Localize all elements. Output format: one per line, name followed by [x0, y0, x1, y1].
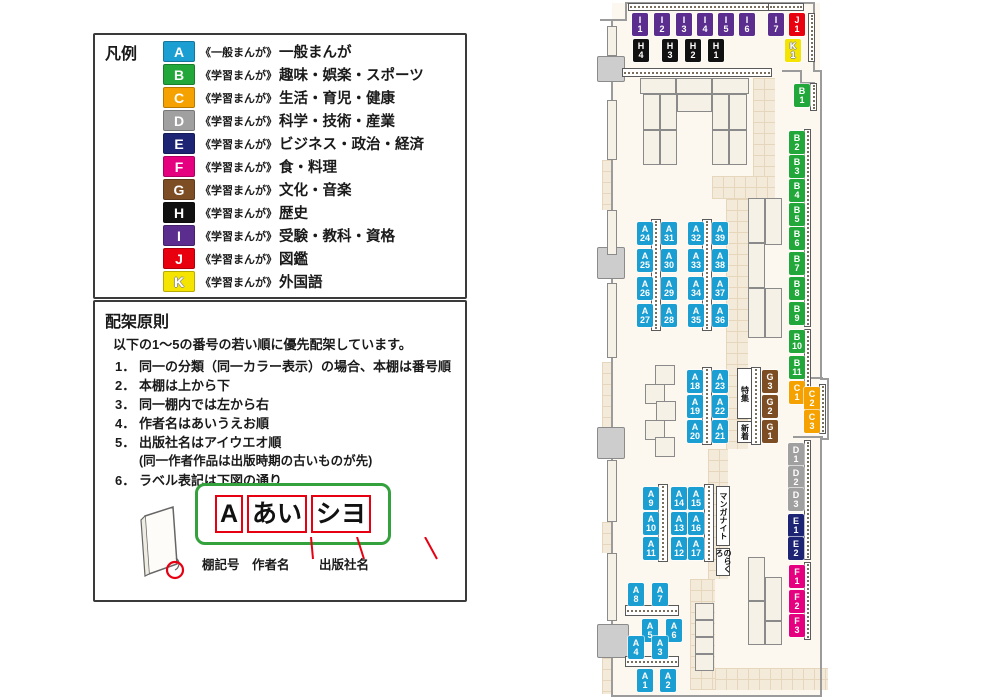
shelf-label-B6: B6 [789, 227, 805, 250]
label-segment-2: あい [247, 495, 307, 533]
shelf-box [655, 437, 675, 457]
shelf-label-A6: A6 [666, 619, 682, 642]
shelf-box [748, 243, 765, 288]
shelf-box [660, 94, 677, 130]
label-segment-1: A [215, 495, 243, 533]
shelf-box [640, 78, 676, 94]
rule-3: 3．同一棚内では左から右 [115, 395, 459, 414]
shelf-label-A9: A9 [643, 487, 659, 510]
shelf-label-B5: B5 [789, 203, 805, 226]
legend-item-list: A《一般まんが》一般まんがB《学習まんが》趣味・娯楽・スポーツC《学習まんが》生… [163, 40, 424, 293]
category-label: 受験・教科・資格 [279, 225, 395, 246]
shelf-label-A27: A27 [637, 304, 653, 327]
shelf-label-J1: J1 [789, 13, 805, 36]
legend-item-B: B《学習まんが》趣味・娯楽・スポーツ [163, 63, 424, 86]
shelf-box [655, 365, 675, 385]
shelf-label-F2: F2 [789, 590, 805, 613]
shelf-box [765, 288, 782, 338]
shelf-label-A4: A4 [628, 636, 644, 659]
rule-4: 4．作者名はあいうえお順 [115, 414, 459, 433]
rule-number: 1． [115, 357, 139, 376]
shelf-label-A11: A11 [643, 537, 659, 560]
shelf-strip [658, 484, 668, 562]
category-swatch-C: C [163, 87, 195, 108]
shelf-strip [808, 13, 815, 62]
category-label: 図鑑 [279, 248, 308, 269]
shelf-label-F3: F3 [789, 614, 805, 637]
category-swatch-I: I [163, 225, 195, 246]
shelf-label-A2: A2 [660, 669, 676, 692]
shelf-box [729, 130, 747, 165]
shelf-label-G3: G3 [762, 370, 778, 393]
shelf-label-H1: H1 [708, 39, 724, 62]
shelf-label-E2: E2 [788, 537, 804, 560]
walkway-tile [753, 78, 775, 176]
shelf-box [660, 130, 677, 165]
shelf-label-B8: B8 [789, 277, 805, 300]
rule-text: 同一の分類（同一カラー表示）の場合、本棚は番号順 [139, 357, 451, 376]
door [597, 56, 625, 82]
shelf-label-D3: D3 [788, 488, 804, 511]
category-scope: 《学習まんが》 [200, 90, 277, 106]
door [597, 427, 625, 459]
legend-item-A: A《一般まんが》一般まんが [163, 40, 424, 63]
shelf-box [748, 198, 765, 243]
category-swatch-B: B [163, 64, 195, 85]
legend-item-K: K《学習まんが》外国語 [163, 270, 424, 293]
category-label: ビジネス・政治・経済 [279, 133, 424, 154]
shelf-label-D2: D2 [788, 466, 804, 489]
wall [600, 19, 627, 21]
category-label: 一般まんが [279, 41, 352, 62]
shelf-box [676, 78, 712, 94]
category-scope: 《学習まんが》 [200, 205, 277, 221]
shelf-label-I5: I5 [718, 13, 734, 36]
shelf-box [695, 603, 714, 620]
shelf-label-A7: A7 [652, 583, 668, 606]
shelf-box [765, 621, 782, 645]
shelf-box [695, 620, 714, 637]
shelf-label-A8: A8 [628, 583, 644, 606]
shelf-label-A33: A33 [688, 249, 704, 272]
rule-number: 2． [115, 376, 139, 395]
shelf-box [607, 283, 617, 358]
shelf-label-A15: A15 [688, 487, 704, 510]
shelf-strip [810, 83, 817, 111]
shelf-strip [804, 440, 811, 560]
shelf-label-C1: C1 [789, 381, 805, 404]
rule-number: 5． [115, 433, 139, 452]
legend-item-F: F《学習まんが》食・料理 [163, 155, 424, 178]
shelf-label-B9: B9 [789, 302, 805, 325]
shelf-label-A25: A25 [637, 249, 653, 272]
shelf-box [748, 288, 765, 338]
category-swatch-D: D [163, 110, 195, 131]
category-scope: 《学習まんが》 [200, 159, 277, 175]
shelf-box [607, 100, 617, 160]
label-caption-2: 作者名 [252, 554, 290, 573]
shelf-strip [804, 129, 811, 327]
shelf-strip [819, 384, 826, 434]
category-swatch-F: F [163, 156, 195, 177]
legend-item-C: C《学習まんが》生活・育児・健康 [163, 86, 424, 109]
shelf-label-A35: A35 [688, 304, 704, 327]
shelf-label-A29: A29 [661, 277, 677, 300]
shelf-label-A34: A34 [688, 277, 704, 300]
rule-text: 同一棚内では左から右 [139, 395, 269, 414]
shelf-box [695, 654, 714, 671]
shelf-label-A19: A19 [687, 395, 703, 418]
book-icon [135, 502, 195, 592]
shelf-box [695, 637, 714, 654]
walkway-tile [712, 176, 775, 199]
category-scope: 《学習まんが》 [200, 182, 277, 198]
category-scope: 《一般まんが》 [200, 44, 277, 60]
shelf-box [677, 94, 712, 112]
shelf-label-A36: A36 [712, 304, 728, 327]
shelf-box [643, 130, 660, 165]
shelf-label-A17: A17 [688, 537, 704, 560]
shelf-box [607, 553, 617, 621]
shelf-label-A26: A26 [637, 277, 653, 300]
shelf-label-A20: A20 [687, 420, 703, 443]
rule-text: 作者名はあいうえお順 [139, 414, 269, 433]
category-scope: 《学習まんが》 [200, 136, 277, 152]
label-segment-3: シヨ [311, 495, 371, 533]
shelf-strip [702, 367, 712, 445]
shelf-label-A23: A23 [712, 370, 728, 393]
category-scope: 《学習まんが》 [200, 67, 277, 83]
shelf-label-I4: I4 [697, 13, 713, 36]
shelf-label-A21: A21 [712, 420, 728, 443]
principles-panel: 配架原則 以下の1〜5の番号の若い順に優先配架しています。 1．同一の分類（同一… [93, 300, 467, 602]
shelf-label-A3: A3 [652, 636, 668, 659]
category-swatch-J: J [163, 248, 195, 269]
category-label: 趣味・娯楽・スポーツ [279, 64, 424, 85]
shelf-label-A28: A28 [661, 304, 677, 327]
rule-number: 3． [115, 395, 139, 414]
shelf-strip [804, 562, 811, 640]
shelf-box [712, 94, 729, 130]
wall [612, 695, 822, 697]
shelf-box [607, 210, 617, 255]
shelf-label-D1: D1 [788, 443, 804, 466]
legend-item-G: G《学習まんが》文化・音楽 [163, 178, 424, 201]
category-swatch-K: K [163, 271, 195, 292]
shelf-label-A10: A10 [643, 512, 659, 535]
shelf-label-I6: I6 [739, 13, 755, 36]
wall [793, 436, 823, 438]
category-label: 外国語 [279, 271, 323, 292]
wall [625, 3, 627, 21]
category-label: 歴史 [279, 202, 308, 223]
shelf-label-B11: B11 [789, 356, 805, 379]
shelf-box [656, 401, 676, 421]
category-label: 食・料理 [279, 156, 337, 177]
rule-text: 本棚は上から下 [139, 376, 230, 395]
shelf-label-A16: A16 [688, 512, 704, 535]
wall [782, 70, 802, 72]
wall [820, 70, 822, 380]
shelf-box [607, 26, 617, 56]
label-caption-1: 棚記号 [202, 554, 240, 573]
rule-5: 5．出版社名はアイウエオ順 [115, 433, 459, 452]
shelf-label-A22: A22 [712, 395, 728, 418]
rule-1: 1．同一の分類（同一カラー表示）の場合、本棚は番号順 [115, 357, 459, 376]
area-label-3: マンガナイト [716, 486, 730, 546]
shelf-label-G2: G2 [762, 395, 778, 418]
shelf-label-A31: A31 [661, 222, 677, 245]
wall [827, 378, 829, 440]
legend-item-E: E《学習まんが》ビジネス・政治・経済 [163, 132, 424, 155]
legend-panel: 凡例 A《一般まんが》一般まんがB《学習まんが》趣味・娯楽・スポーツC《学習まん… [93, 33, 467, 299]
category-scope: 《学習まんが》 [200, 113, 277, 129]
door [597, 624, 629, 658]
legend-item-D: D《学習まんが》科学・技術・産業 [163, 109, 424, 132]
shelf-label-B2: B2 [789, 131, 805, 154]
area-label-2: 新着 [737, 421, 752, 443]
shelf-box [748, 601, 765, 645]
shelf-label-B3: B3 [789, 155, 805, 178]
shelf-box [729, 94, 747, 130]
shelf-box [712, 130, 729, 165]
category-swatch-H: H [163, 202, 195, 223]
principles-intro: 以下の1〜5の番号の若い順に優先配架しています。 [113, 334, 412, 353]
shelf-strip [625, 605, 679, 616]
shelf-label-A13: A13 [671, 512, 687, 535]
shelf-box [607, 460, 617, 522]
shelf-label-E1: E1 [788, 514, 804, 537]
shelf-label-F1: F1 [789, 565, 805, 588]
shelf-strip [751, 367, 761, 445]
category-scope: 《学習まんが》 [200, 228, 277, 244]
shelf-label-C2: C2 [804, 387, 820, 410]
shelf-label-A1: A1 [637, 669, 653, 692]
principles-rule-list: 1．同一の分類（同一カラー表示）の場合、本棚は番号順2．本棚は上から下3．同一棚… [115, 357, 459, 490]
rule-2: 2．本棚は上から下 [115, 376, 459, 395]
shelf-box [643, 94, 660, 130]
wall [820, 438, 822, 697]
rule-number: 6． [115, 471, 139, 490]
rule-subtext: (同一作者作品は出版時期の古いものが先) [139, 452, 459, 471]
shelf-label-A37: A37 [712, 277, 728, 300]
shelf-label-B4: B4 [789, 179, 805, 202]
shelf-label-A38: A38 [712, 249, 728, 272]
shelf-label-C3: C3 [804, 410, 820, 433]
shelf-label-A12: A12 [671, 537, 687, 560]
shelf-strip [622, 68, 772, 77]
shelf-label-G1: G1 [762, 420, 778, 443]
shelf-label-A24: A24 [637, 222, 653, 245]
walkway-tile [715, 668, 828, 690]
shelf-label-A14: A14 [671, 487, 687, 510]
shelf-label-A18: A18 [687, 370, 703, 393]
shelf-label-I1: I1 [632, 13, 648, 36]
category-label: 生活・育児・健康 [279, 87, 395, 108]
shelf-box [748, 557, 765, 601]
category-label: 文化・音楽 [279, 179, 352, 200]
category-label: 科学・技術・産業 [279, 110, 395, 131]
category-swatch-E: E [163, 133, 195, 154]
shelf-box [765, 577, 782, 621]
shelf-label-I7: I7 [768, 13, 784, 36]
shelf-label-B7: B7 [789, 252, 805, 275]
area-label-4: のらくろ [716, 548, 730, 576]
shelf-label-B10: B10 [789, 330, 805, 353]
legend-item-I: I《学習まんが》受験・教科・資格 [163, 224, 424, 247]
label-caption-3: 出版社名 [319, 554, 369, 573]
shelf-label-I2: I2 [654, 13, 670, 36]
category-scope: 《学習まんが》 [200, 274, 277, 290]
category-swatch-G: G [163, 179, 195, 200]
shelf-strip [768, 3, 804, 11]
category-swatch-A: A [163, 41, 195, 62]
shelf-strip [628, 3, 774, 11]
rule-number: 4． [115, 414, 139, 433]
shelf-box [712, 78, 749, 94]
shelf-label-K1: K1 [785, 39, 801, 62]
shelf-label-A39: A39 [712, 222, 728, 245]
shelf-label-B1: B1 [794, 84, 810, 107]
area-label-1: 特集 [737, 368, 752, 419]
legend-item-J: J《学習まんが》図鑑 [163, 247, 424, 270]
legend-title: 凡例 [105, 40, 137, 64]
shelf-label-A32: A32 [688, 222, 704, 245]
legend-item-H: H《学習まんが》歴史 [163, 201, 424, 224]
shelf-label-H3: H3 [662, 39, 678, 62]
label-example: Aあいシヨ [195, 483, 391, 545]
page: 特集新着マンガナイトのらくろI1I2I3I4I5I6I7J1K1H4H3H2H1… [0, 0, 1000, 700]
shelf-label-H4: H4 [633, 39, 649, 62]
category-scope: 《学習まんが》 [200, 251, 277, 267]
shelf-strip [704, 484, 714, 562]
principles-title: 配架原則 [105, 308, 169, 332]
shelf-label-I3: I3 [676, 13, 692, 36]
shelf-box [765, 198, 782, 245]
rule-text: 出版社名はアイウエオ順 [139, 433, 281, 452]
shelf-label-H2: H2 [685, 39, 701, 62]
shelf-label-A30: A30 [661, 249, 677, 272]
